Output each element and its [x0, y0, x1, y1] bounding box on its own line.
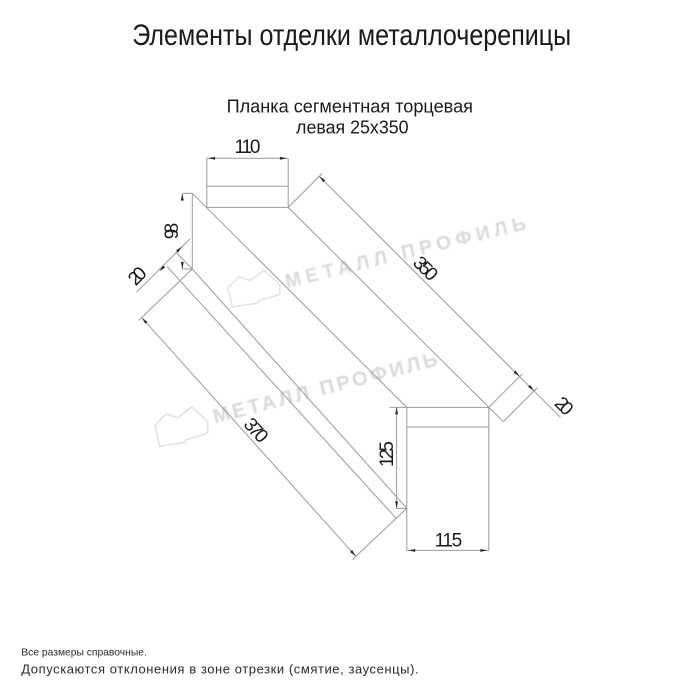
svg-text:125: 125: [377, 441, 398, 467]
svg-text:98: 98: [162, 223, 183, 240]
svg-text:Планка сегментная торцевая: Планка сегментная торцевая: [227, 96, 473, 116]
svg-text:110: 110: [235, 137, 261, 158]
svg-text:Допускаются отклонения в зоне: Допускаются отклонения в зоне отрезки (с…: [21, 662, 418, 677]
svg-text:Все размеры справочные.: Все размеры справочные.: [21, 648, 147, 659]
svg-text:левая 25x350: левая 25x350: [296, 118, 409, 138]
svg-text:115: 115: [435, 530, 463, 551]
svg-text:Элементы отделки металлочерепи: Элементы отделки металлочерепицы: [132, 19, 571, 52]
